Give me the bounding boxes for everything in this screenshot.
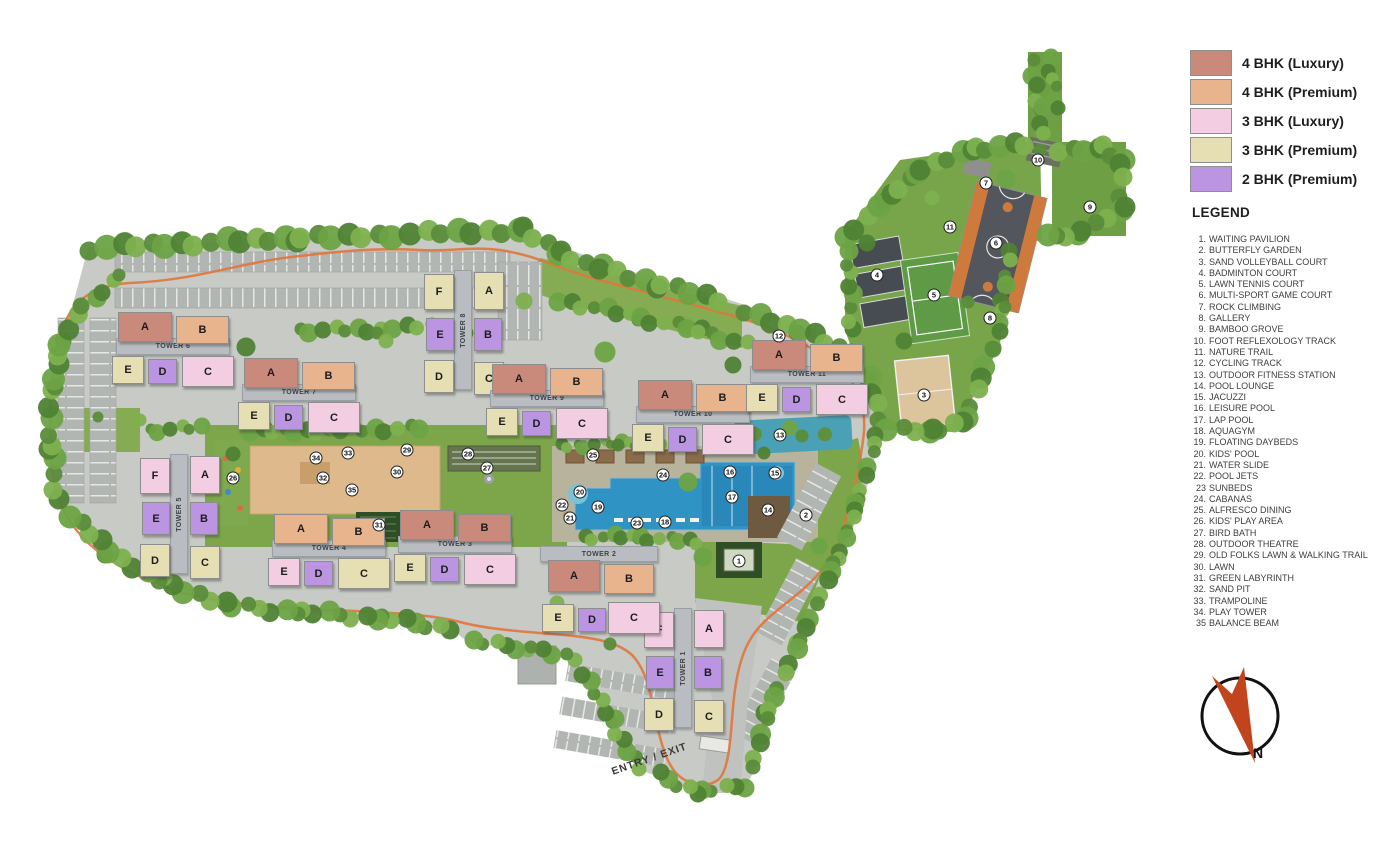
legend-item-label: GALLERY	[1209, 313, 1250, 324]
key-row: 2 BHK (Premium)	[1190, 166, 1357, 192]
tower-label: TOWER 4	[312, 545, 347, 552]
legend-item-number: 4.	[1192, 268, 1209, 279]
compass-north-label: N	[1253, 745, 1263, 761]
amenity-marker: 23	[631, 517, 644, 530]
legend-item: 14.POOL LOUNGE	[1192, 381, 1368, 392]
tower-plinth: TOWER 1	[674, 608, 692, 728]
legend-item-label: ROCK CLIMBING	[1209, 302, 1281, 313]
tower-plinth: TOWER 5	[170, 454, 188, 574]
key-row: 4 BHK (Premium)	[1190, 79, 1357, 105]
amenity-marker: 18	[659, 516, 672, 529]
tower-block: D	[274, 405, 303, 430]
tower-label: TOWER 2	[582, 551, 617, 558]
legend-item-label: POOL LOUNGE	[1209, 381, 1274, 392]
amenity-marker: 8	[984, 312, 997, 325]
tower-block: D	[424, 360, 454, 393]
legend-item: 16.LEISURE POOL	[1192, 403, 1368, 414]
legend-item-number: 17.	[1192, 415, 1209, 426]
key-swatch	[1190, 108, 1232, 134]
legend-item-label: FLOATING DAYBEDS	[1209, 437, 1298, 448]
legend-item-label: GREEN LABYRINTH	[1209, 573, 1294, 584]
legend-item-number: 19.	[1192, 437, 1209, 448]
legend-item: 7.ROCK CLIMBING	[1192, 302, 1368, 313]
amenity-marker: 12	[773, 330, 786, 343]
key-label: 3 BHK (Premium)	[1242, 142, 1357, 158]
amenity-marker: 24	[657, 469, 670, 482]
tower-block: A	[244, 358, 298, 388]
legend-item-number: 25.	[1192, 505, 1209, 516]
tower-block: C	[556, 408, 608, 439]
legend-item-label: SUNBEDS	[1209, 483, 1253, 494]
tower-block: E	[238, 402, 270, 430]
legend-item-label: LAWN	[1209, 562, 1235, 573]
amenity-marker: 3	[918, 389, 931, 402]
amenity-marker: 22	[556, 499, 569, 512]
legend-item: 33.TRAMPOLINE	[1192, 596, 1368, 607]
amenity-marker: 29	[401, 444, 414, 457]
legend-items: 1.WAITING PAVILION2.BUTTERFLY GARDEN3.SA…	[1192, 234, 1368, 629]
tower-block: B	[474, 318, 502, 351]
tower-block: A	[118, 312, 172, 342]
amenity-marker: 33	[342, 447, 355, 460]
legend-panel: LEGEND 1.WAITING PAVILION2.BUTTERFLY GAR…	[1192, 205, 1368, 629]
tower-block: E	[394, 554, 426, 582]
legend-item: 11.NATURE TRAIL	[1192, 347, 1368, 358]
legend-item-label: BALANCE BEAM	[1209, 618, 1279, 629]
tower-block: B	[604, 564, 654, 594]
tower-block: D	[668, 427, 697, 452]
tower-block: C	[338, 558, 390, 589]
amenity-marker: 19	[592, 501, 605, 514]
tower-block: C	[308, 402, 360, 433]
tower-label: TOWER 1	[680, 651, 687, 686]
key-swatch	[1190, 166, 1232, 192]
tower-block: B	[696, 384, 749, 412]
tower-block: E	[632, 424, 664, 452]
legend-item-number: 6.	[1192, 290, 1209, 301]
amenity-marker: 9	[1084, 201, 1097, 214]
legend-item: 21.WATER SLIDE	[1192, 460, 1368, 471]
legend-item-number: 23	[1192, 483, 1209, 494]
legend-item-label: OUTDOOR THEATRE	[1209, 539, 1299, 550]
legend-item: 29.OLD FOLKS LAWN & WALKING TRAIL	[1192, 550, 1368, 561]
tower-block: B	[810, 344, 863, 372]
tower-block: E	[646, 656, 674, 689]
tower-block: F	[424, 274, 454, 310]
tower-block: C	[190, 546, 220, 579]
tower-block: B	[176, 316, 229, 344]
amenity-marker: 13	[774, 429, 787, 442]
legend-item: 9.BAMBOO GROVE	[1192, 324, 1368, 335]
legend-item-label: CABANAS	[1209, 494, 1252, 505]
amenity-marker: 34	[310, 452, 323, 465]
legend-item-number: 16.	[1192, 403, 1209, 414]
legend-item-number: 18.	[1192, 426, 1209, 437]
legend-item-label: LAWN TENNIS COURT	[1209, 279, 1304, 290]
legend-item: 23SUNBEDS	[1192, 483, 1368, 494]
tower-block: C	[816, 384, 868, 415]
legend-item: 19.FLOATING DAYBEDS	[1192, 437, 1368, 448]
tower-label: TOWER 3	[438, 541, 473, 548]
legend-item-number: 11.	[1192, 347, 1209, 358]
tower-block: E	[268, 558, 300, 586]
amenity-marker: 11	[944, 221, 957, 234]
tower-block: E	[426, 318, 454, 351]
tower-block: D	[782, 387, 811, 412]
legend-item: 15.JACUZZI	[1192, 392, 1368, 403]
legend-item-number: 10.	[1192, 336, 1209, 347]
tower-block: D	[148, 359, 177, 384]
tower-block: F	[140, 458, 170, 494]
legend-item-number: 2.	[1192, 245, 1209, 256]
tower-block: B	[190, 502, 218, 535]
tower-block: A	[548, 560, 600, 592]
legend-item: 5.LAWN TENNIS COURT	[1192, 279, 1368, 290]
tower-block: C	[702, 424, 754, 455]
legend-item-label: BUTTERFLY GARDEN	[1209, 245, 1302, 256]
amenity-marker: 26	[227, 472, 240, 485]
legend-item-label: FOOT REFLEXOLOGY TRACK	[1209, 336, 1336, 347]
amenity-marker: 17	[726, 491, 739, 504]
amenity-marker: 15	[769, 467, 782, 480]
legend-item-label: CYCLING TRACK	[1209, 358, 1282, 369]
legend-item: 27.BIRD BATH	[1192, 528, 1368, 539]
amenity-marker: 7	[980, 177, 993, 190]
tower-block: E	[142, 502, 170, 535]
tower-block: B	[694, 656, 722, 689]
legend-item: 4.BADMINTON COURT	[1192, 268, 1368, 279]
tower-block: A	[274, 514, 328, 544]
legend-item-label: TRAMPOLINE	[1209, 596, 1268, 607]
legend-item-label: ALFRESCO DINING	[1209, 505, 1292, 516]
legend-item-number: 14.	[1192, 381, 1209, 392]
tower-block: D	[304, 561, 333, 586]
tower-block: A	[400, 510, 454, 540]
legend-item: 13.OUTDOOR FITNESS STATION	[1192, 370, 1368, 381]
bhk-color-key: 4 BHK (Luxury)4 BHK (Premium)3 BHK (Luxu…	[1190, 50, 1357, 195]
legend-item-number: 35	[1192, 618, 1209, 629]
legend-item-label: AQUAGYM	[1209, 426, 1255, 437]
legend-item: 25.ALFRESCO DINING	[1192, 505, 1368, 516]
legend-item-number: 31.	[1192, 573, 1209, 584]
legend-item-number: 21.	[1192, 460, 1209, 471]
key-row: 4 BHK (Luxury)	[1190, 50, 1357, 76]
legend-item-label: WATER SLIDE	[1209, 460, 1269, 471]
tower-block: A	[638, 380, 692, 410]
legend-item: 32.SAND PIT	[1192, 584, 1368, 595]
legend-item: 10.FOOT REFLEXOLOGY TRACK	[1192, 336, 1368, 347]
tower-block: D	[644, 698, 674, 731]
tower-label: TOWER 5	[176, 497, 183, 532]
legend-item-number: 30.	[1192, 562, 1209, 573]
legend-item-label: POOL JETS	[1209, 471, 1258, 482]
amenity-marker: 30	[391, 466, 404, 479]
amenity-marker: 16	[724, 466, 737, 479]
compass	[1190, 660, 1320, 790]
legend-item-label: LAP POOL	[1209, 415, 1253, 426]
legend-item-label: SAND PIT	[1209, 584, 1251, 595]
key-swatch	[1190, 79, 1232, 105]
legend-item-label: OUTDOOR FITNESS STATION	[1209, 370, 1336, 381]
legend-item: 6.MULTI-SPORT GAME COURT	[1192, 290, 1368, 301]
legend-item: 2.BUTTERFLY GARDEN	[1192, 245, 1368, 256]
key-label: 2 BHK (Premium)	[1242, 171, 1357, 187]
tower-block: C	[608, 602, 660, 634]
legend-item-number: 15.	[1192, 392, 1209, 403]
tower-block: B	[458, 514, 511, 542]
amenity-marker: 28	[462, 448, 475, 461]
tower-block: A	[190, 456, 220, 494]
amenity-marker: 5	[928, 289, 941, 302]
key-swatch	[1190, 50, 1232, 76]
amenity-marker: 35	[346, 484, 359, 497]
legend-item: 26.KIDS' PLAY AREA	[1192, 516, 1368, 527]
tower-block: B	[302, 362, 355, 390]
legend-item-label: SAND VOLLEYBALL COURT	[1209, 257, 1328, 268]
amenity-marker: 4	[871, 269, 884, 282]
amenity-marker: 25	[587, 449, 600, 462]
amenity-marker: 32	[317, 472, 330, 485]
legend-item: 28.OUTDOOR THEATRE	[1192, 539, 1368, 550]
key-label: 4 BHK (Luxury)	[1242, 55, 1344, 71]
legend-item-number: 7.	[1192, 302, 1209, 313]
tower-block: E	[486, 408, 518, 436]
legend-item-number: 9.	[1192, 324, 1209, 335]
legend-item-number: 1.	[1192, 234, 1209, 245]
legend-item: 22.POOL JETS	[1192, 471, 1368, 482]
tower-block: E	[746, 384, 778, 412]
key-row: 3 BHK (Premium)	[1190, 137, 1357, 163]
amenity-marker: 20	[574, 486, 587, 499]
amenity-marker: 10	[1032, 154, 1045, 167]
key-swatch	[1190, 137, 1232, 163]
legend-item-number: 32.	[1192, 584, 1209, 595]
key-label: 4 BHK (Premium)	[1242, 84, 1357, 100]
legend-item: 1.WAITING PAVILION	[1192, 234, 1368, 245]
tower-block: A	[752, 340, 806, 370]
tower-plinth: TOWER 8	[454, 270, 472, 390]
legend-item-label: KIDS' POOL	[1209, 449, 1259, 460]
site-master-plan: TOWER 1FAEBDCTOWER 2ABEDCTOWER 3ABEDCTOW…	[0, 0, 1400, 852]
legend-item-number: 28.	[1192, 539, 1209, 550]
tower-block: A	[694, 610, 724, 648]
legend-item: 35BALANCE BEAM	[1192, 618, 1368, 629]
key-row: 3 BHK (Luxury)	[1190, 108, 1357, 134]
legend-item: 18.AQUAGYM	[1192, 426, 1368, 437]
legend-item: 34.PLAY TOWER	[1192, 607, 1368, 618]
legend-item-number: 24.	[1192, 494, 1209, 505]
tower-block: C	[464, 554, 516, 585]
legend-item-number: 12.	[1192, 358, 1209, 369]
tower-label: TOWER 9	[530, 395, 565, 402]
tower-block: C	[694, 700, 724, 733]
legend-item-number: 29.	[1192, 550, 1209, 561]
tower-label: TOWER 10	[674, 411, 713, 418]
tower-block: B	[550, 368, 603, 396]
tower-label: TOWER 7	[282, 389, 317, 396]
tower-block: A	[474, 272, 504, 310]
legend-item-label: LEISURE POOL	[1209, 403, 1275, 414]
legend-item: 3.SAND VOLLEYBALL COURT	[1192, 257, 1368, 268]
amenity-marker: 31	[373, 519, 386, 532]
legend-item: 12.CYCLING TRACK	[1192, 358, 1368, 369]
legend-item-number: 3.	[1192, 257, 1209, 268]
legend-item: 20.KIDS' POOL	[1192, 449, 1368, 460]
tower-block: E	[542, 604, 574, 632]
tower-block: E	[112, 356, 144, 384]
legend-item-label: JACUZZI	[1209, 392, 1246, 403]
legend-item-label: PLAY TOWER	[1209, 607, 1267, 618]
legend-item: 17.LAP POOL	[1192, 415, 1368, 426]
legend-item: 24.CABANAS	[1192, 494, 1368, 505]
legend-item-number: 13.	[1192, 370, 1209, 381]
legend-item-label: WAITING PAVILION	[1209, 234, 1290, 245]
legend-item-label: NATURE TRAIL	[1209, 347, 1273, 358]
amenity-marker: 14	[762, 504, 775, 517]
tower-label: TOWER 11	[788, 371, 826, 378]
tower-block: D	[522, 411, 551, 436]
key-label: 3 BHK (Luxury)	[1242, 113, 1344, 129]
tower-block: A	[492, 364, 546, 394]
amenity-marker: 21	[564, 512, 577, 525]
legend-item-label: BADMINTON COURT	[1209, 268, 1297, 279]
legend-item-number: 22.	[1192, 471, 1209, 482]
legend-item-label: OLD FOLKS LAWN & WALKING TRAIL	[1209, 550, 1368, 561]
tower-block: D	[140, 544, 170, 577]
amenity-marker: 6	[990, 237, 1003, 250]
amenity-marker: 2	[800, 509, 813, 522]
legend-item-label: KIDS' PLAY AREA	[1209, 516, 1283, 527]
legend-item-number: 26.	[1192, 516, 1209, 527]
legend-item-number: 34.	[1192, 607, 1209, 618]
legend-item-number: 27.	[1192, 528, 1209, 539]
tower-block: C	[182, 356, 234, 387]
tower-label: TOWER 6	[156, 343, 191, 350]
legend-item-number: 8.	[1192, 313, 1209, 324]
amenity-marker: 1	[733, 555, 746, 568]
legend-item: 8.GALLERY	[1192, 313, 1368, 324]
legend-item-label: BAMBOO GROVE	[1209, 324, 1284, 335]
tower-block: D	[578, 608, 606, 632]
legend-item: 30.LAWN	[1192, 562, 1368, 573]
legend-item-number: 33.	[1192, 596, 1209, 607]
legend-title: LEGEND	[1192, 205, 1368, 220]
tower-label: TOWER 8	[460, 313, 467, 348]
amenity-marker: 27	[481, 462, 494, 475]
legend-item-number: 20.	[1192, 449, 1209, 460]
legend-item-label: BIRD BATH	[1209, 528, 1256, 539]
legend-item-number: 5.	[1192, 279, 1209, 290]
legend-item: 31.GREEN LABYRINTH	[1192, 573, 1368, 584]
legend-item-label: MULTI-SPORT GAME COURT	[1209, 290, 1332, 301]
tower-block: D	[430, 557, 459, 582]
